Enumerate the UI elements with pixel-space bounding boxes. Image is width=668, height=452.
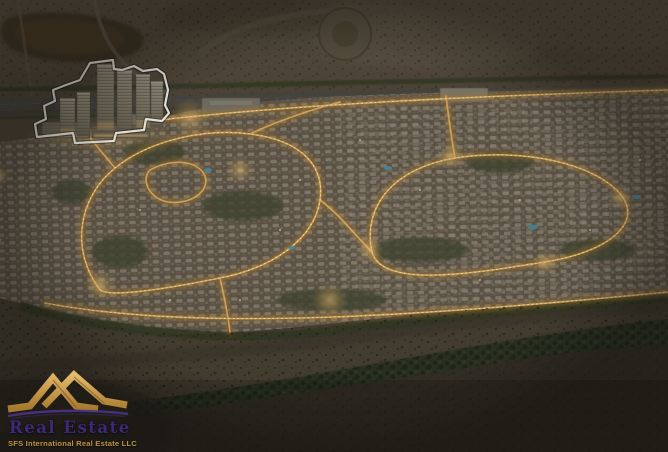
scene-render [0,0,668,452]
aerial-masterplan-photo: Real Estate SFS International Real Estat… [0,0,668,452]
